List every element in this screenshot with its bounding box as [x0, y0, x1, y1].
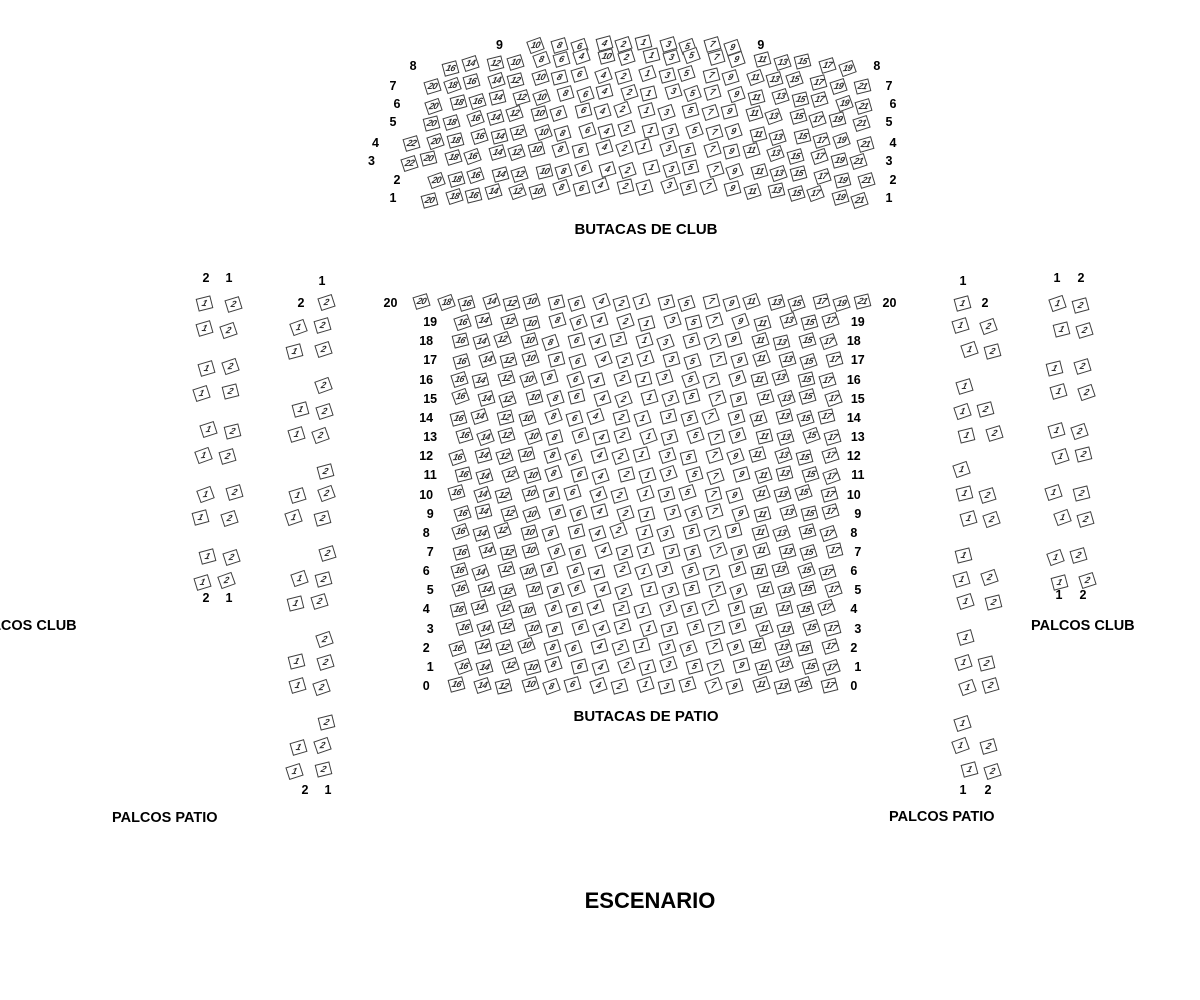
seat[interactable]: 13	[777, 582, 795, 599]
seat[interactable]: 13	[775, 600, 793, 616]
seat[interactable]: 2	[224, 296, 242, 313]
seat[interactable]: 8	[556, 86, 574, 103]
seat[interactable]: 6	[578, 122, 596, 139]
seat[interactable]: 9	[729, 427, 747, 444]
seat[interactable]: 6	[567, 295, 585, 312]
seat[interactable]: 12	[502, 465, 521, 482]
seat[interactable]: 16	[466, 167, 484, 184]
seat[interactable]: 18	[437, 294, 456, 311]
seat[interactable]: 15	[793, 54, 811, 70]
seat[interactable]: 1	[638, 65, 656, 82]
seat[interactable]: 17	[825, 543, 843, 559]
seat[interactable]: 1	[634, 138, 652, 155]
seat[interactable]: 10	[528, 183, 546, 200]
seat[interactable]: 8	[551, 69, 569, 85]
seat[interactable]: 2	[222, 384, 240, 400]
seat[interactable]: 6	[570, 66, 588, 83]
seat[interactable]: 1	[1049, 383, 1067, 400]
seat[interactable]: 14	[471, 408, 489, 425]
seat[interactable]: 14	[473, 525, 491, 542]
seat[interactable]: 2	[311, 427, 330, 444]
seat[interactable]: 9	[730, 392, 748, 408]
seat[interactable]: 14	[482, 293, 500, 310]
seat[interactable]: 14	[478, 582, 496, 598]
seat[interactable]: 21	[854, 99, 872, 116]
seat[interactable]: 12	[498, 427, 516, 444]
seat[interactable]: 11	[756, 581, 774, 598]
seat[interactable]: 1	[636, 350, 654, 367]
seat[interactable]: 15	[795, 640, 813, 656]
seat[interactable]: 7	[704, 525, 722, 542]
seat[interactable]: 15	[799, 544, 817, 561]
seat[interactable]: 16	[456, 619, 474, 636]
seat[interactable]: 1	[961, 762, 979, 778]
seat[interactable]: 2	[1072, 297, 1090, 313]
seat[interactable]: 2	[978, 487, 996, 504]
seat[interactable]: 7	[703, 84, 721, 101]
seat[interactable]: 7	[707, 659, 725, 676]
seat[interactable]: 12	[494, 331, 513, 348]
seat[interactable]: 1	[192, 509, 210, 525]
seat[interactable]: 2	[315, 572, 333, 588]
seat[interactable]: 17	[817, 599, 836, 616]
seat[interactable]: 4	[593, 103, 611, 120]
seat[interactable]: 5	[683, 85, 702, 102]
seat[interactable]: 11	[752, 350, 771, 367]
seat[interactable]: 11	[752, 485, 771, 502]
seat[interactable]: 10	[525, 389, 543, 405]
seat[interactable]: 1	[1051, 448, 1069, 465]
seat[interactable]: 17	[824, 390, 842, 407]
seat[interactable]: 2	[612, 295, 630, 312]
seat[interactable]: 2	[313, 737, 331, 754]
seat[interactable]: 7	[703, 141, 721, 158]
seat[interactable]: 12	[498, 370, 516, 387]
seat[interactable]: 2	[614, 583, 632, 600]
seat[interactable]: 1	[635, 372, 653, 388]
seat[interactable]: 3	[658, 294, 676, 310]
seat[interactable]: 6	[564, 448, 583, 465]
seat[interactable]: 5	[686, 467, 704, 484]
seat[interactable]: 6	[567, 332, 585, 348]
seat[interactable]: 10	[531, 69, 549, 86]
seat[interactable]: 13	[774, 447, 792, 464]
seat[interactable]: 13	[775, 656, 794, 673]
seat[interactable]: 7	[703, 564, 721, 580]
seat[interactable]: 2	[614, 391, 633, 408]
seat[interactable]: 8	[544, 600, 562, 617]
seat[interactable]: 1	[288, 487, 306, 504]
seat[interactable]: 9	[727, 639, 745, 656]
seat[interactable]: 2	[318, 545, 336, 562]
seat[interactable]: 14	[475, 638, 493, 654]
seat[interactable]: 15	[798, 389, 816, 406]
seat[interactable]: 9	[725, 331, 743, 347]
seat[interactable]: 4	[588, 333, 606, 350]
seat[interactable]: 19	[832, 132, 851, 149]
seat[interactable]: 6	[567, 389, 585, 405]
seat[interactable]: 4	[587, 564, 605, 580]
seat[interactable]: 7	[704, 333, 722, 350]
seat[interactable]: 2	[312, 679, 330, 696]
seat[interactable]: 2	[613, 370, 631, 387]
seat[interactable]: 15	[797, 371, 815, 387]
seat[interactable]: 2	[610, 679, 628, 695]
seat[interactable]: 17	[820, 677, 838, 693]
seat[interactable]: 15	[798, 580, 816, 596]
seat[interactable]: 17	[818, 564, 836, 581]
seat[interactable]: 3	[658, 67, 676, 83]
seat[interactable]: 4	[589, 485, 608, 502]
seat[interactable]: 21	[850, 192, 868, 209]
seat[interactable]: 7	[702, 68, 720, 84]
seat[interactable]: 21	[857, 172, 875, 189]
seat[interactable]: 2	[314, 376, 333, 393]
seat[interactable]: 10	[507, 54, 525, 71]
seat[interactable]: 1	[292, 402, 310, 418]
seat[interactable]: 13	[764, 108, 783, 125]
seat[interactable]: 20	[423, 115, 441, 131]
seat[interactable]: 17	[813, 168, 831, 185]
seat[interactable]: 9	[727, 448, 746, 465]
seat[interactable]: 6	[569, 505, 587, 522]
seat[interactable]: 1	[959, 510, 977, 527]
seat[interactable]: 17	[823, 621, 841, 637]
seat[interactable]: 17	[810, 75, 828, 91]
seat[interactable]: 2	[219, 322, 237, 339]
seat[interactable]: 1	[192, 385, 210, 402]
seat[interactable]: 2	[978, 656, 996, 672]
seat[interactable]: 2	[1076, 511, 1094, 528]
seat[interactable]: 21	[849, 153, 867, 170]
seat[interactable]: 10	[521, 350, 539, 367]
seat[interactable]: 8	[546, 390, 564, 407]
seat[interactable]: 7	[703, 294, 721, 310]
seat[interactable]: 12	[495, 487, 513, 503]
seat[interactable]: 2	[616, 313, 634, 330]
seat[interactable]: 1	[197, 360, 215, 377]
seat[interactable]: 15	[801, 658, 819, 675]
seat[interactable]: 2	[620, 84, 638, 101]
seat[interactable]: 1	[643, 160, 661, 176]
seat[interactable]: 13	[773, 486, 791, 503]
seat[interactable]: 13	[768, 294, 786, 311]
seat[interactable]: 9	[724, 123, 742, 140]
seat[interactable]: 5	[686, 658, 704, 674]
seat[interactable]: 2	[616, 179, 634, 195]
seat[interactable]: 9	[729, 370, 747, 387]
seat[interactable]: 17	[818, 57, 836, 74]
seat[interactable]: 14	[472, 563, 491, 580]
seat[interactable]: 11	[743, 183, 761, 200]
seat[interactable]: 1	[958, 428, 976, 444]
seat[interactable]: 2	[222, 549, 240, 566]
seat[interactable]: 1	[956, 486, 974, 502]
seat[interactable]: 2	[1077, 384, 1095, 401]
seat[interactable]: 14	[487, 72, 505, 89]
seat[interactable]: 16	[451, 523, 470, 540]
seat[interactable]: 13	[776, 430, 794, 447]
seat[interactable]: 7	[699, 178, 717, 195]
seat[interactable]: 1	[290, 570, 308, 587]
seat[interactable]: 20	[421, 193, 439, 209]
seat[interactable]: 10	[597, 49, 615, 65]
seat[interactable]: 1	[956, 593, 974, 610]
seat[interactable]: 13	[773, 678, 791, 694]
seat[interactable]: 11	[750, 372, 768, 388]
seat[interactable]: 3	[663, 352, 681, 368]
seat[interactable]: 8	[540, 369, 558, 386]
seat[interactable]: 11	[753, 506, 771, 522]
seat[interactable]: 9	[728, 51, 746, 68]
seat[interactable]: 20	[427, 172, 446, 189]
seat[interactable]: 15	[797, 562, 816, 579]
seat[interactable]: 13	[778, 352, 796, 369]
seat[interactable]: 15	[791, 91, 809, 107]
seat[interactable]: 4	[586, 599, 604, 616]
seat[interactable]: 12	[496, 639, 514, 656]
seat[interactable]: 8	[549, 105, 567, 122]
seat[interactable]: 1	[288, 677, 306, 694]
seat[interactable]: 22	[402, 135, 420, 152]
seat[interactable]: 1	[634, 563, 653, 580]
seat[interactable]: 13	[771, 561, 789, 578]
seat[interactable]: 10	[522, 315, 540, 331]
seat[interactable]: 14	[490, 128, 508, 144]
seat[interactable]: 17	[821, 638, 839, 655]
seat[interactable]: 2	[316, 654, 334, 671]
seat[interactable]: 2	[615, 544, 633, 560]
seat[interactable]: 4	[592, 620, 611, 637]
seat[interactable]: 7	[706, 503, 724, 520]
seat[interactable]: 9	[733, 658, 751, 674]
seat[interactable]: 17	[819, 524, 837, 541]
seat[interactable]: 2	[614, 68, 632, 85]
seat[interactable]: 2	[612, 409, 630, 425]
seat[interactable]: 20	[423, 78, 441, 95]
seat[interactable]: 7	[703, 372, 721, 389]
seat[interactable]: 16	[449, 640, 467, 657]
seat[interactable]: 2	[1078, 572, 1096, 589]
seat[interactable]: 7	[708, 49, 726, 66]
seat[interactable]: 5	[684, 544, 702, 561]
seat[interactable]: 14	[474, 677, 492, 694]
seat[interactable]: 6	[570, 658, 588, 674]
seat[interactable]: 5	[679, 179, 697, 196]
seat[interactable]: 16	[453, 314, 471, 331]
seat[interactable]: 6	[570, 467, 588, 483]
seat[interactable]: 4	[598, 123, 616, 139]
seat[interactable]: 1	[194, 447, 213, 464]
seat[interactable]: 3	[658, 447, 676, 464]
seat[interactable]: 17	[820, 486, 838, 502]
seat[interactable]: 18	[443, 77, 462, 94]
seat[interactable]: 6	[571, 142, 589, 158]
seat[interactable]: 10	[521, 676, 539, 693]
seat[interactable]: 4	[593, 390, 611, 407]
seat[interactable]: 5	[682, 102, 700, 118]
seat[interactable]: 13	[768, 129, 786, 146]
seat[interactable]: 7	[710, 542, 729, 559]
seat[interactable]: 15	[799, 353, 817, 370]
seat[interactable]: 3	[659, 140, 677, 157]
seat[interactable]: 10	[521, 485, 539, 502]
seat[interactable]: 3	[659, 600, 678, 617]
seat[interactable]: 9	[723, 143, 741, 159]
seat[interactable]: 2	[1069, 547, 1087, 564]
seat[interactable]: 2	[981, 677, 999, 694]
seat[interactable]: 1	[958, 679, 977, 696]
seat[interactable]: 9	[732, 505, 750, 522]
seat[interactable]: 3	[661, 621, 679, 637]
seat[interactable]: 20	[412, 293, 430, 310]
seat[interactable]: 11	[749, 602, 767, 619]
seat[interactable]: 13	[768, 182, 786, 198]
seat[interactable]: 13	[778, 543, 796, 559]
seat[interactable]: 2	[613, 101, 632, 118]
seat[interactable]: 5	[681, 410, 699, 427]
seat[interactable]: 1	[636, 485, 654, 502]
seat[interactable]: 1	[633, 446, 651, 462]
seat[interactable]: 9	[727, 86, 745, 103]
seat[interactable]: 1	[953, 403, 971, 420]
seat[interactable]: 15	[798, 523, 816, 540]
seat[interactable]: 2	[613, 618, 631, 635]
seat[interactable]: 17	[808, 111, 826, 128]
seat[interactable]: 6	[574, 103, 592, 119]
seat[interactable]: 14	[488, 145, 506, 162]
seat[interactable]: 10	[518, 602, 536, 619]
seat[interactable]: 2	[613, 561, 631, 578]
seat[interactable]: 1	[638, 506, 656, 522]
seat[interactable]: 7	[705, 677, 724, 694]
seat[interactable]: 2	[318, 714, 336, 730]
seat[interactable]: 6	[567, 523, 585, 539]
seat[interactable]: 2	[610, 487, 628, 504]
seat[interactable]: 16	[450, 410, 468, 426]
seat[interactable]: 1	[195, 320, 213, 337]
seat[interactable]: 14	[479, 351, 497, 368]
seat[interactable]: 1	[287, 595, 305, 611]
seat[interactable]: 14	[475, 504, 493, 520]
seat[interactable]: 8	[545, 430, 563, 446]
seat[interactable]: 13	[771, 88, 789, 105]
seat[interactable]: 2	[220, 510, 238, 527]
seat[interactable]: 10	[519, 371, 538, 388]
seat[interactable]: 11	[756, 389, 774, 406]
seat[interactable]: 8	[553, 125, 571, 142]
seat[interactable]: 11	[748, 638, 766, 654]
seat[interactable]: 13	[769, 165, 787, 182]
seat[interactable]: 9	[731, 352, 749, 369]
seat[interactable]: 12	[497, 409, 515, 425]
seat[interactable]: 8	[544, 465, 562, 482]
seat[interactable]: 16	[451, 371, 469, 388]
seat[interactable]: 5	[679, 676, 697, 693]
seat[interactable]: 10	[524, 428, 542, 445]
seat[interactable]: 1	[955, 378, 973, 395]
seat[interactable]: 5	[685, 314, 703, 330]
seat[interactable]: 1	[639, 619, 657, 636]
seat[interactable]: 3	[659, 656, 677, 673]
seat[interactable]: 5	[683, 389, 701, 405]
seat[interactable]: 3	[664, 84, 682, 101]
seat[interactable]: 3	[656, 561, 674, 578]
seat[interactable]: 1	[633, 638, 651, 654]
seat[interactable]: 7	[705, 486, 723, 502]
seat[interactable]: 16	[457, 296, 475, 313]
seat[interactable]: 18	[449, 94, 467, 110]
seat[interactable]: 2	[218, 449, 236, 466]
seat[interactable]: 10	[535, 163, 553, 179]
seat[interactable]: 5	[682, 159, 700, 175]
seat[interactable]: 12	[507, 72, 525, 88]
seat[interactable]: 18	[442, 114, 460, 131]
seat[interactable]: 6	[563, 676, 581, 693]
seat[interactable]: 3	[661, 430, 679, 447]
seat[interactable]: 1	[641, 581, 659, 597]
seat[interactable]: 9	[721, 103, 739, 119]
seat[interactable]: 7	[706, 161, 724, 178]
seat[interactable]: 6	[568, 545, 586, 562]
seat[interactable]: 6	[552, 51, 570, 68]
seat[interactable]: 1	[638, 467, 656, 484]
seat[interactable]: 10	[519, 563, 537, 580]
seat[interactable]: 12	[508, 182, 527, 199]
seat[interactable]: 13	[777, 390, 796, 407]
seat[interactable]: 2	[616, 505, 634, 522]
seat[interactable]: 4	[590, 504, 608, 520]
seat[interactable]: 1	[633, 602, 651, 619]
seat[interactable]: 10	[522, 293, 540, 310]
seat[interactable]: 14	[474, 485, 492, 502]
seat[interactable]: 8	[546, 582, 564, 599]
seat[interactable]: 9	[729, 618, 747, 635]
seat[interactable]: 14	[478, 390, 496, 407]
seat[interactable]: 11	[751, 332, 769, 349]
seat[interactable]: 9	[725, 523, 743, 539]
seat[interactable]: 16	[451, 580, 469, 597]
seat[interactable]: 16	[470, 128, 488, 145]
seat[interactable]: 21	[854, 79, 872, 95]
seat[interactable]: 14	[486, 109, 504, 126]
seat[interactable]: 1	[954, 296, 972, 312]
seat[interactable]: 4	[591, 177, 609, 194]
seat[interactable]: 15	[793, 129, 811, 145]
seat[interactable]: 12	[510, 166, 528, 183]
seat[interactable]: 1	[1053, 509, 1072, 526]
seat[interactable]: 7	[702, 407, 721, 424]
seat[interactable]: 10	[523, 659, 541, 675]
seat[interactable]: 5	[680, 449, 698, 465]
seat[interactable]: 10	[523, 467, 541, 484]
seat[interactable]: 4	[591, 659, 609, 676]
seat[interactable]: 3	[663, 543, 681, 559]
seat[interactable]: 2	[221, 358, 239, 375]
seat[interactable]: 1	[289, 319, 308, 336]
seat[interactable]: 7	[706, 312, 724, 329]
seat[interactable]: 15	[786, 149, 804, 166]
seat[interactable]: 19	[833, 172, 851, 188]
seat[interactable]: 1	[632, 293, 650, 310]
seat[interactable]: 16	[442, 60, 460, 76]
seat[interactable]: 5	[681, 601, 699, 618]
seat[interactable]: 2	[317, 463, 335, 479]
seat[interactable]: 4	[591, 468, 609, 485]
seat[interactable]: 1	[952, 461, 970, 478]
seat[interactable]: 6	[569, 314, 588, 331]
seat[interactable]: 17	[810, 148, 828, 165]
